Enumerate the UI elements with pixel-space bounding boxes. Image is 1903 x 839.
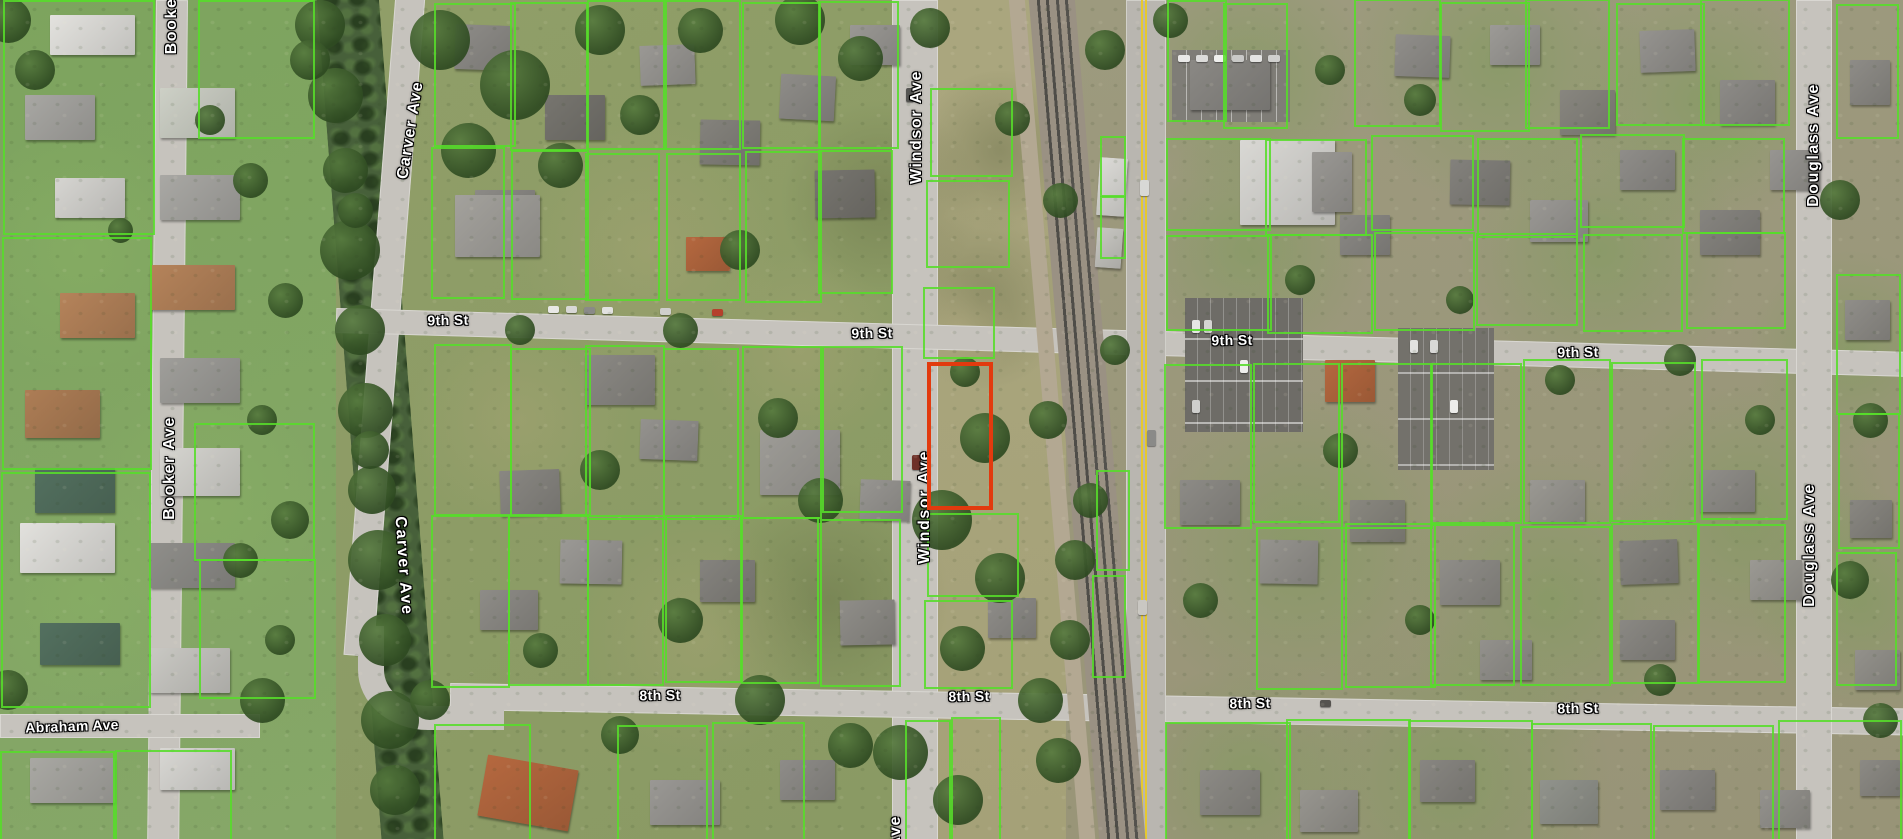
parcel-boundary <box>0 751 115 839</box>
parcel-boundary <box>1341 363 1433 529</box>
street-label: 8th St <box>1557 700 1599 717</box>
yellow-center-line <box>1145 0 1147 839</box>
parcel-boundary <box>741 517 819 684</box>
aerial-map[interactable]: BookerCarver AveWindsor AveDouglass Ave9… <box>0 0 1903 839</box>
parcel-boundary <box>115 750 232 839</box>
parcel-boundary <box>924 600 1013 690</box>
parcel-boundary <box>434 3 515 147</box>
street-label: 9th St <box>851 325 893 342</box>
car <box>1147 430 1156 446</box>
car <box>584 307 595 314</box>
car <box>602 307 613 314</box>
parcel-boundary <box>1100 136 1126 197</box>
parcel-boundary <box>511 150 588 301</box>
tree-canopy <box>1085 30 1125 70</box>
car <box>566 306 577 313</box>
street-label: Abraham Ave <box>25 716 119 735</box>
parcel-boundary <box>1 472 150 709</box>
tree-canopy <box>338 193 373 228</box>
car <box>1430 340 1438 353</box>
tree-canopy <box>1183 583 1218 618</box>
car <box>1320 700 1331 707</box>
street-label: Booker <box>163 0 181 54</box>
parcel-boundary <box>1580 134 1686 228</box>
tree-canopy <box>335 305 385 355</box>
parcel-boundary <box>198 0 315 139</box>
parcel-boundary <box>663 348 738 519</box>
highlighted-parcel[interactable] <box>927 362 993 510</box>
parcel-boundary <box>1682 138 1785 234</box>
parcel-boundary <box>1345 523 1436 688</box>
parcel-boundary <box>1430 363 1523 523</box>
parcel-boundary <box>434 724 531 839</box>
parcel-boundary <box>1256 527 1343 689</box>
tree-canopy <box>505 315 535 345</box>
parcel-boundary <box>1477 138 1578 238</box>
parcel-boundary <box>587 0 667 150</box>
parcel-boundary <box>510 2 588 151</box>
parcel-boundary <box>1697 524 1785 683</box>
parcel-boundary <box>3 0 155 235</box>
parcel-boundary <box>1838 413 1900 549</box>
parcel-boundary <box>663 0 742 150</box>
parcel-boundary <box>1523 359 1610 524</box>
parcel-boundary <box>951 717 1001 839</box>
parcel-boundary <box>927 513 1018 597</box>
parcel-boundary <box>617 725 708 839</box>
tree-canopy <box>1820 180 1860 220</box>
parcel-boundary <box>1778 720 1902 839</box>
parcel-boundary <box>745 151 822 303</box>
parcel-boundary <box>923 287 995 359</box>
parcel-boundary <box>1430 524 1516 686</box>
tree-canopy <box>320 220 380 280</box>
tree-canopy <box>1043 183 1078 218</box>
parcel-boundary <box>1166 138 1271 231</box>
tree-canopy <box>910 8 950 48</box>
street-label: Douglass Ave <box>1801 483 1819 607</box>
parcel-boundary <box>665 515 743 684</box>
parcel-boundary <box>1700 0 1790 126</box>
car <box>660 308 671 315</box>
tree-canopy <box>663 313 698 348</box>
tree-canopy <box>268 283 303 318</box>
parcel-boundary <box>818 1 899 150</box>
car <box>1138 600 1147 615</box>
parcel-boundary <box>1611 362 1696 522</box>
street-label: 9th St <box>1211 332 1253 349</box>
parcel-boundary <box>905 720 951 839</box>
tree-canopy <box>233 163 268 198</box>
parcel-boundary <box>1611 523 1699 684</box>
parcel-boundary <box>1164 364 1252 529</box>
parcel-boundary <box>1525 0 1609 129</box>
street-label: 9th St <box>427 312 469 329</box>
parcel-boundary <box>1096 470 1129 571</box>
parcel-boundary <box>1440 2 1530 132</box>
parcel-boundary <box>818 150 893 294</box>
tree-canopy <box>323 148 368 193</box>
parcel-boundary <box>1166 235 1272 330</box>
parcel-boundary <box>1836 274 1901 415</box>
parcel-boundary <box>1374 232 1475 331</box>
parcel-boundary <box>1686 232 1786 328</box>
tree-canopy <box>359 614 411 666</box>
parcel-boundary <box>742 346 822 519</box>
parcel-boundary <box>585 345 665 517</box>
parcel-boundary <box>1701 359 1788 520</box>
parcel-boundary <box>1223 3 1288 128</box>
tree-canopy <box>338 383 393 438</box>
parcel-boundary <box>1267 234 1373 334</box>
parcel-boundary <box>1253 363 1340 524</box>
parcel-boundary <box>1100 196 1127 259</box>
parcel-boundary <box>1531 723 1652 839</box>
parcel-boundary <box>1265 139 1367 236</box>
parcel-boundary <box>585 153 660 301</box>
car <box>548 306 559 313</box>
car <box>712 309 723 316</box>
street-label: 8th St <box>948 688 990 705</box>
parcel-boundary <box>510 348 591 517</box>
parcel-boundary <box>587 518 664 687</box>
car <box>1140 180 1149 196</box>
parcel-boundary <box>926 180 1010 268</box>
parcel-boundary <box>1836 552 1897 687</box>
parcel-boundary <box>1520 526 1611 686</box>
parcel-boundary <box>1408 720 1534 839</box>
parcel-boundary <box>930 88 1013 177</box>
parcel-boundary <box>712 722 804 839</box>
parcel-boundary <box>1653 725 1773 839</box>
tree-canopy <box>1315 55 1345 85</box>
parcel-boundary <box>666 153 742 302</box>
tree-canopy <box>370 765 420 815</box>
parcel-boundary <box>1092 575 1125 678</box>
street-label: 8th St <box>1229 695 1271 712</box>
parcel-boundary <box>1371 135 1474 231</box>
parcel-boundary <box>820 519 901 687</box>
tree-canopy <box>1036 738 1081 783</box>
tree-canopy <box>348 466 396 514</box>
building-roof <box>150 265 235 310</box>
street-label: Booker Ave <box>161 416 179 520</box>
parcel-boundary <box>508 515 589 687</box>
building-roof <box>160 175 240 220</box>
tree-canopy <box>1029 401 1067 439</box>
parcel-boundary <box>742 2 821 148</box>
parcel-boundary <box>1167 0 1227 122</box>
parcel-boundary <box>1836 4 1899 139</box>
tree-canopy <box>1055 540 1095 580</box>
parcel-boundary <box>1354 0 1441 127</box>
parcel-boundary <box>2 237 152 470</box>
parcel-boundary <box>431 147 505 299</box>
parcel-boundary <box>1165 722 1291 839</box>
street-label: Douglass Ave <box>1805 83 1823 207</box>
tree-canopy <box>1018 678 1063 723</box>
street-label: Windsor Ave <box>887 815 905 839</box>
building-roof <box>160 358 240 403</box>
street-label: 9th St <box>1557 344 1599 361</box>
parcel-boundary <box>1583 234 1683 332</box>
parcel-boundary <box>822 346 902 512</box>
street-label: Windsor Ave <box>908 70 926 184</box>
parcel-boundary <box>199 559 317 700</box>
parcel-boundary <box>1286 719 1411 839</box>
street-label: 8th St <box>639 687 681 704</box>
parcel-boundary <box>1616 3 1705 126</box>
parcel-boundary <box>1476 233 1579 327</box>
parcel-boundary <box>194 423 316 561</box>
tree-canopy <box>1050 620 1090 660</box>
parcel-boundary <box>434 344 512 516</box>
yellow-center-line <box>1141 0 1143 839</box>
tree-canopy <box>828 723 873 768</box>
parcel-boundary <box>431 515 510 688</box>
car <box>1410 340 1418 353</box>
tree-canopy <box>1100 335 1130 365</box>
tree-canopy <box>351 431 389 469</box>
